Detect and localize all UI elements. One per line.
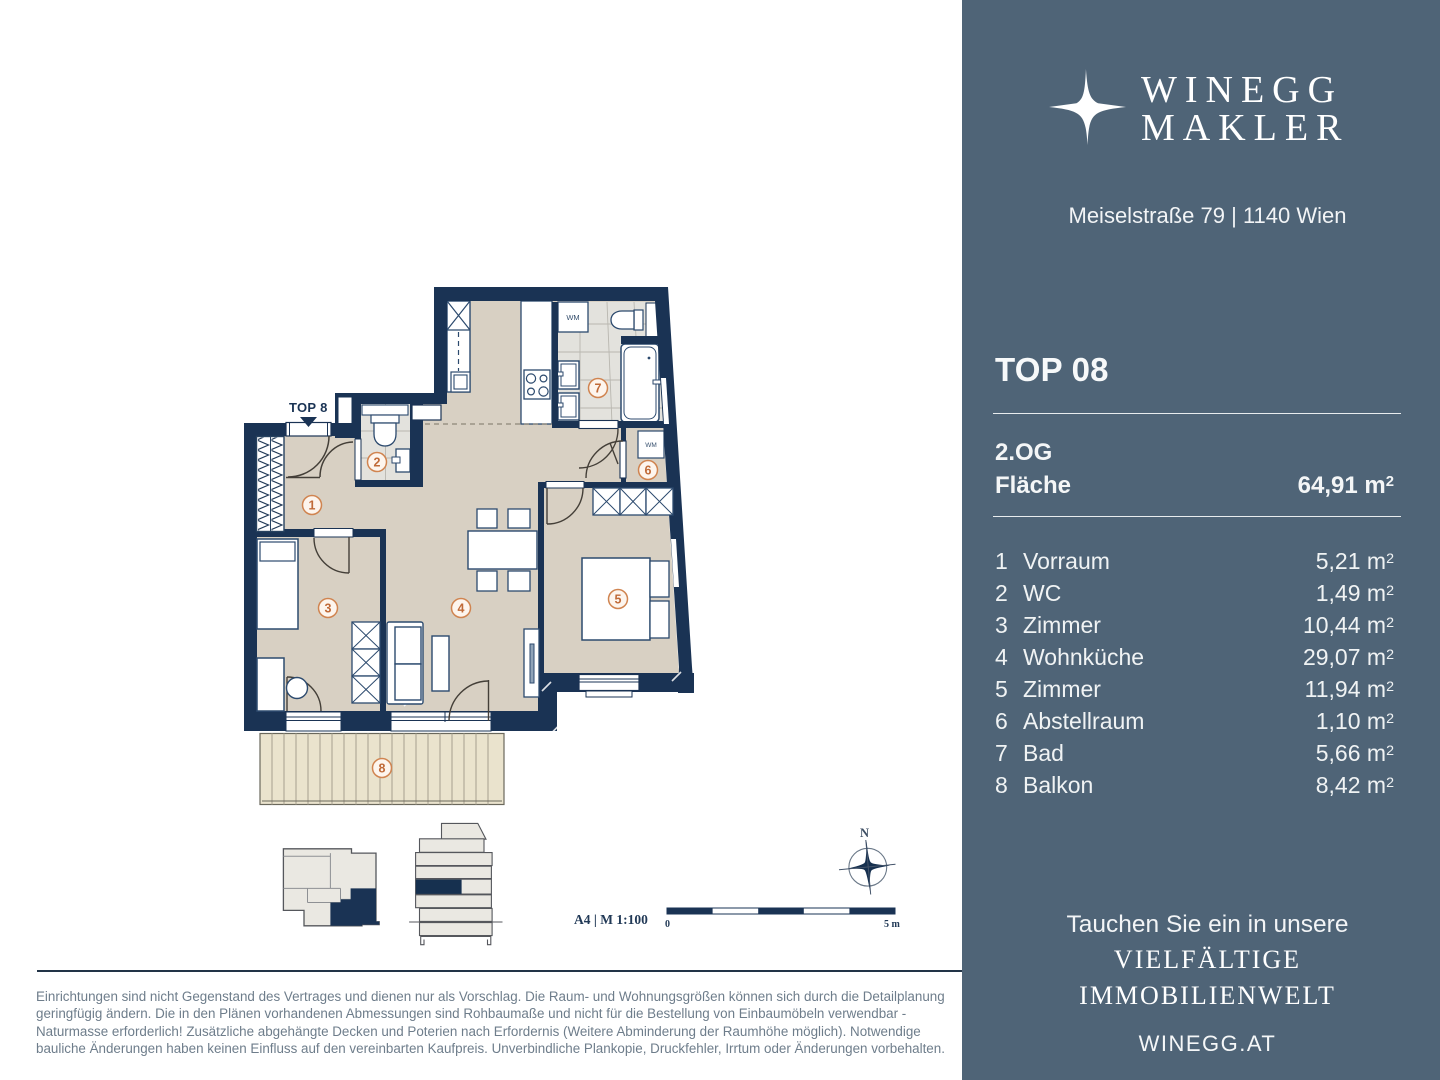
svg-text:3: 3 (325, 602, 332, 616)
svg-text:0: 0 (665, 919, 670, 930)
svg-text:N: N (860, 826, 869, 840)
svg-text:TOP 8: TOP 8 (289, 400, 328, 415)
svg-text:5 m: 5 m (884, 919, 901, 930)
svg-text:WM: WM (566, 313, 579, 322)
svg-text:8: 8 (379, 762, 386, 776)
svg-text:5: 5 (615, 593, 622, 607)
svg-text:2: 2 (374, 456, 381, 470)
svg-text:6: 6 (645, 464, 652, 478)
svg-text:7: 7 (595, 382, 602, 396)
svg-text:WM: WM (645, 442, 657, 449)
svg-text:4: 4 (458, 602, 465, 616)
svg-text:1: 1 (309, 499, 316, 513)
svg-text:A4 | M 1:100: A4 | M 1:100 (574, 912, 648, 927)
